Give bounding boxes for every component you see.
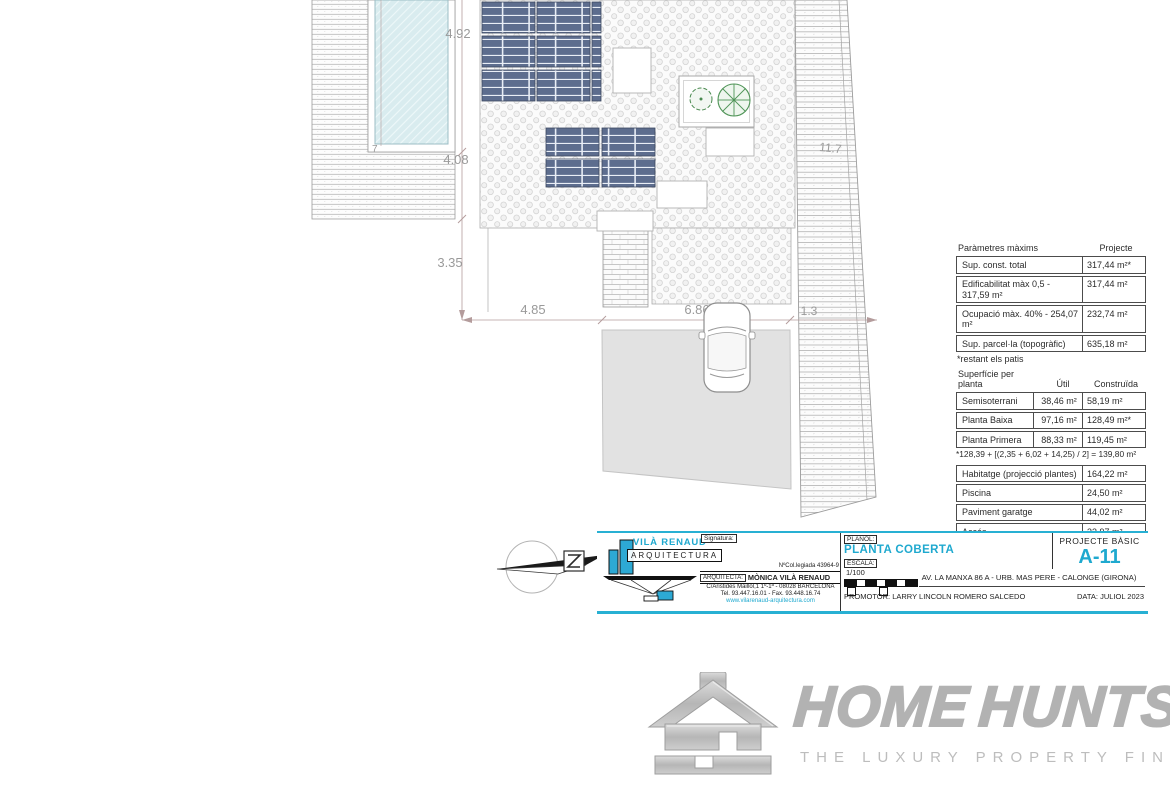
house-icon bbox=[642, 672, 784, 782]
row-label: Planta Baixa bbox=[957, 413, 1034, 428]
dim-4-85: 4.85 bbox=[520, 302, 545, 317]
access-ramp bbox=[795, 0, 876, 517]
row-value: 317,44 m²* bbox=[1083, 257, 1145, 272]
architect-label: ARQUITECTA: bbox=[700, 574, 746, 582]
plan-name: PLANTA COBERTA bbox=[844, 544, 954, 556]
date: DATA: JULIOL 2023 bbox=[1077, 592, 1144, 601]
dim-4-92: 4.92 bbox=[445, 26, 470, 41]
studio-subtitle: ARQUITECTURA bbox=[627, 549, 722, 562]
row-label: Sup. parcel·la (topogràfic) bbox=[957, 336, 1083, 351]
tree-large-icon bbox=[718, 84, 750, 116]
architectural-drawing-page: 7 bbox=[0, 0, 1170, 785]
divider bbox=[840, 533, 841, 611]
dim-3-35: 3.35 bbox=[437, 255, 462, 270]
params-footnote: *restant els patis bbox=[957, 354, 1146, 364]
params-header-right: Projecte bbox=[1086, 243, 1146, 253]
surface-header-built: Construïda bbox=[1086, 379, 1146, 389]
row-value: 635,18 m² bbox=[1083, 336, 1145, 351]
row-built-value: 58,19 m² bbox=[1083, 393, 1145, 408]
surface-header-label: Superfície per planta bbox=[958, 369, 1040, 390]
project-type: PROJECTE BÀSIC bbox=[1055, 536, 1144, 546]
surface-table-header: Superfície per planta Útil Construïda bbox=[958, 369, 1146, 390]
architect-address: C/Aristides Maillol,1 1º-1ª - 08028 BARC… bbox=[700, 584, 841, 590]
graphic-scale-bar bbox=[844, 579, 918, 587]
row-label: Planta Primera bbox=[957, 432, 1034, 447]
table-row: Sup. const. total 317,44 m²* bbox=[956, 256, 1146, 273]
table-row: Semisoterrani 38,46 m² 58,19 m² bbox=[956, 392, 1146, 409]
brand-wordmark: HOMEHUNTS bbox=[792, 674, 1170, 740]
brand-tagline: THE LUXURY PROPERTY FINDERS bbox=[800, 749, 1170, 766]
row-util-value: 38,46 m² bbox=[1034, 393, 1083, 408]
table-row: Sup. parcel·la (topogràfic) 635,18 m² bbox=[956, 335, 1146, 352]
row-value: 164,22 m² bbox=[1083, 466, 1145, 481]
params-header-left: Paràmetres màxims bbox=[958, 243, 1086, 253]
dim-4-08: 4.08 bbox=[443, 152, 468, 167]
row-label: Edificabilitat màx 0,5 - 317,59 m² bbox=[957, 277, 1083, 303]
roof-planter bbox=[679, 76, 754, 127]
divider bbox=[919, 586, 1145, 587]
row-label: Sup. const. total bbox=[957, 257, 1083, 272]
row-util-value: 97,16 m² bbox=[1034, 413, 1083, 428]
north-arrow-icon bbox=[497, 541, 604, 593]
row-built-value: 119,45 m² bbox=[1083, 432, 1145, 447]
surface-header-util: Útil bbox=[1040, 379, 1086, 389]
scale-value: 1/100 bbox=[846, 568, 865, 577]
promoter: PROMOTOR: LARRY LINCOLN ROMERO SALCEDO bbox=[844, 592, 1025, 601]
garage-pavement bbox=[602, 330, 791, 489]
row-label: Semisoterrani bbox=[957, 393, 1034, 408]
surface-footnote: *128,39 + [(2,35 + 6,02 + 14,25) / 2] = … bbox=[956, 450, 1146, 460]
divider bbox=[1052, 533, 1053, 569]
row-value: 44,02 m² bbox=[1083, 505, 1145, 520]
sheet-number: A-11 bbox=[1055, 546, 1144, 569]
title-block: VILÀ RENAUD ARQUITECTURA Signatura: NºCo… bbox=[597, 531, 1148, 614]
params-table-header: Paràmetres màxims Projecte bbox=[958, 243, 1146, 253]
architect-row: ARQUITECTA: MÒNICA VILÀ RENAUD bbox=[700, 571, 841, 584]
parameters-panel: Paràmetres màxims Projecte Sup. const. t… bbox=[956, 243, 1146, 562]
row-value: 232,74 m² bbox=[1083, 306, 1145, 332]
brand-part1: HOME bbox=[792, 675, 971, 739]
studio-name: VILÀ RENAUD bbox=[633, 537, 707, 548]
row-label: Piscina bbox=[957, 485, 1083, 500]
brand-part2: HUNTS bbox=[977, 675, 1170, 739]
table-row: Habitatge (projecció plantes) 164,22 m² bbox=[956, 465, 1146, 482]
college-number: NºCol.legiada 43964-9 bbox=[715, 563, 839, 569]
table-row: Ocupació màx. 40% - 254,07 m² 232,74 m² bbox=[956, 305, 1146, 333]
table-row: Paviment garatge 44,02 m² bbox=[956, 504, 1146, 521]
scale-label: ESCALA: bbox=[844, 559, 877, 568]
row-label: Habitatge (projecció plantes) bbox=[957, 466, 1083, 481]
table-row: Planta Baixa 97,16 m² 128,49 m²* bbox=[956, 412, 1146, 429]
row-label: Ocupació màx. 40% - 254,07 m² bbox=[957, 306, 1083, 332]
dim-1-3: 1.3 bbox=[801, 304, 818, 318]
table-row: Planta Primera 88,33 m² 119,45 m² bbox=[956, 431, 1146, 448]
site-address: AV. LA MANXA 86 A - URB. MAS PERE - CALO… bbox=[913, 573, 1145, 582]
homehunts-watermark: HOMEHUNTS THE LUXURY PROPERTY FINDERS bbox=[642, 666, 1170, 785]
table-row: Edificabilitat màx 0,5 - 317,59 m² 317,4… bbox=[956, 276, 1146, 304]
row-label: Paviment garatge bbox=[957, 505, 1083, 520]
architect-website: www.vilarenaud-arquitectura.com bbox=[700, 598, 841, 604]
pool-dimension-label: 7 bbox=[372, 144, 378, 155]
pool: 7 bbox=[368, 0, 455, 155]
tree-small-icon bbox=[690, 88, 712, 110]
car bbox=[699, 303, 755, 392]
dim-11-7: 11.7 bbox=[819, 140, 843, 156]
row-value: 317,44 m² bbox=[1083, 277, 1145, 303]
plan-label: PLANOL: bbox=[844, 535, 877, 544]
row-util-value: 88,33 m² bbox=[1034, 432, 1083, 447]
architect-phone: Tel. 93.447.16.01 - Fax. 93.448.16.74 bbox=[700, 591, 841, 597]
table-row: Piscina 24,50 m² bbox=[956, 484, 1146, 501]
row-value: 24,50 m² bbox=[1083, 485, 1145, 500]
row-built-value: 128,49 m²* bbox=[1083, 413, 1145, 428]
architect-name: MÒNICA VILÀ RENAUD bbox=[748, 573, 830, 582]
signature-label: Signatura: bbox=[701, 534, 737, 543]
